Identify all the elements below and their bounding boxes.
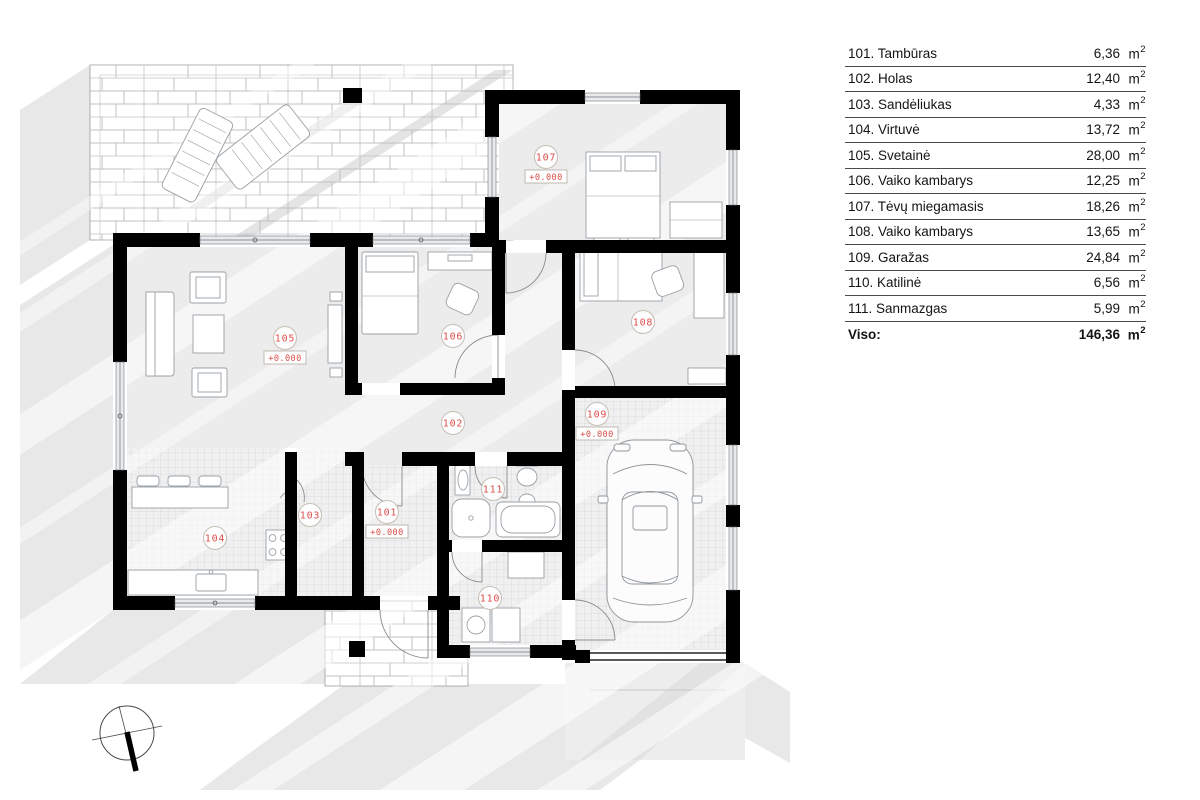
legend-rows: 101. Tambūras6,36m2102. Holas12,40m2103.… bbox=[845, 41, 1146, 322]
legend-row: 103. Sandėliukas4,33m2 bbox=[845, 92, 1146, 118]
svg-text:105: 105 bbox=[275, 334, 295, 345]
room-area-unit: m2 bbox=[1120, 97, 1146, 112]
room-label-106: 106 bbox=[442, 325, 465, 348]
total-label: Viso: bbox=[845, 328, 1062, 342]
room-area-value: 12,40 bbox=[1062, 72, 1120, 86]
room-area-value: 24,84 bbox=[1062, 251, 1120, 265]
room-name: 105. Svetainė bbox=[845, 149, 1062, 163]
room-name: 101. Tambūras bbox=[845, 47, 1062, 61]
room-name: 104. Virtuvė bbox=[845, 123, 1062, 137]
svg-text:104: 104 bbox=[205, 534, 225, 545]
room-label-102: 102 bbox=[442, 412, 465, 435]
room-area-unit: m2 bbox=[1120, 199, 1146, 214]
room-area-value: 5,99 bbox=[1062, 302, 1120, 316]
svg-text:103: 103 bbox=[300, 511, 320, 522]
legend-row: 111. Sanmazgas5,99m2 bbox=[845, 296, 1146, 322]
room-area-unit: m2 bbox=[1120, 173, 1146, 188]
legend-row: 107. Tėvų miegamasis18,26m2 bbox=[845, 194, 1146, 220]
room-name: 108. Vaiko kambarys bbox=[845, 225, 1062, 239]
room-label-111: 111 bbox=[482, 478, 505, 501]
porch-post bbox=[349, 641, 365, 657]
svg-text:107: 107 bbox=[536, 153, 556, 164]
legend-row: 102. Holas12,40m2 bbox=[845, 67, 1146, 93]
area-legend-table: 101. Tambūras6,36m2102. Holas12,40m2103.… bbox=[845, 41, 1146, 348]
room-area-value: 18,26 bbox=[1062, 200, 1120, 214]
legend-row: 108. Vaiko kambarys13,65m2 bbox=[845, 220, 1146, 246]
svg-text:101: 101 bbox=[377, 508, 397, 519]
room-area-unit: m2 bbox=[1120, 224, 1146, 239]
room-name: 107. Tėvų miegamasis bbox=[845, 200, 1062, 214]
svg-text:+0.000: +0.000 bbox=[268, 354, 301, 364]
room-area-unit: m2 bbox=[1120, 71, 1146, 86]
legend-row: 106. Vaiko kambarys12,25m2 bbox=[845, 169, 1146, 195]
room-name: 103. Sandėliukas bbox=[845, 98, 1062, 112]
room-label-104: 104 bbox=[204, 527, 227, 550]
total-area-value: 146,36 bbox=[1062, 328, 1120, 342]
svg-text:+0.000: +0.000 bbox=[529, 173, 562, 183]
room-area-value: 6,36 bbox=[1062, 47, 1120, 61]
room-area-unit: m2 bbox=[1120, 122, 1146, 137]
room-area-value: 28,00 bbox=[1062, 149, 1120, 163]
svg-text:108: 108 bbox=[633, 318, 653, 329]
svg-text:+0.000: +0.000 bbox=[580, 430, 613, 440]
room-name: 102. Holas bbox=[845, 72, 1062, 86]
room-area-value: 4,33 bbox=[1062, 98, 1120, 112]
svg-text:111: 111 bbox=[483, 485, 503, 496]
legend-row: 109. Garažas24,84m2 bbox=[845, 245, 1146, 271]
legend-total-row: Viso: 146,36 m2 bbox=[845, 322, 1146, 348]
room-label-110: 110 bbox=[479, 587, 502, 610]
car-icon bbox=[598, 440, 702, 622]
floor-plan: 101+0.000102103104105+0.000106107+0.0001… bbox=[0, 0, 810, 800]
room-label-108: 108 bbox=[632, 311, 655, 334]
chimney bbox=[343, 88, 362, 103]
legend-row: 101. Tambūras6,36m2 bbox=[845, 41, 1146, 67]
room-area-unit: m2 bbox=[1120, 148, 1146, 163]
room-area-unit: m2 bbox=[1120, 301, 1146, 316]
room-area-unit: m2 bbox=[1120, 250, 1146, 265]
room-area-value: 12,25 bbox=[1062, 174, 1120, 188]
total-area-unit: m2 bbox=[1120, 327, 1146, 342]
room-name: 109. Garažas bbox=[845, 251, 1062, 265]
room-name: 110. Katilinė bbox=[845, 276, 1062, 290]
room-name: 106. Vaiko kambarys bbox=[845, 174, 1062, 188]
legend-row: 110. Katilinė6,56m2 bbox=[845, 271, 1146, 297]
room-area-unit: m2 bbox=[1120, 46, 1146, 61]
page: 101+0.000102103104105+0.000106107+0.0001… bbox=[0, 0, 1200, 800]
svg-text:106: 106 bbox=[443, 332, 463, 343]
room-name: 111. Sanmazgas bbox=[845, 302, 1062, 316]
room-area-value: 13,65 bbox=[1062, 225, 1120, 239]
legend-row: 104. Virtuvė13,72m2 bbox=[845, 118, 1146, 144]
room-label-103: 103 bbox=[299, 504, 322, 527]
svg-text:102: 102 bbox=[443, 419, 463, 430]
room-area-value: 6,56 bbox=[1062, 276, 1120, 290]
legend-row: 105. Svetainė28,00m2 bbox=[845, 143, 1146, 169]
svg-text:109: 109 bbox=[587, 410, 607, 421]
svg-text:110: 110 bbox=[480, 594, 500, 605]
svg-text:+0.000: +0.000 bbox=[370, 528, 403, 538]
room-area-unit: m2 bbox=[1120, 275, 1146, 290]
room-area-value: 13,72 bbox=[1062, 123, 1120, 137]
